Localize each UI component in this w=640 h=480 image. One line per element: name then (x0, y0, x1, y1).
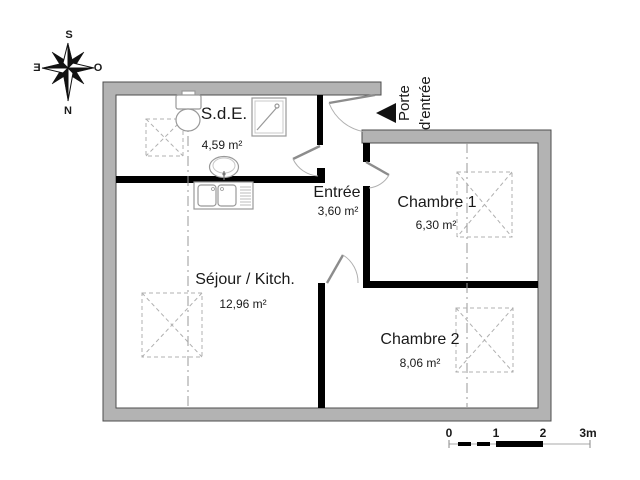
floor-plan: S.d.E. 4,59 m² Entrée 3,60 m² Chambre 1 … (0, 0, 640, 480)
room-area-chambre1: 6,30 m² (416, 218, 457, 232)
wall-sde-door-jamb (317, 168, 325, 176)
scale-tick-0: 0 (446, 426, 453, 440)
entry-door-swing (329, 95, 375, 132)
toilet-icon (176, 91, 201, 131)
scale-bar (449, 440, 590, 448)
room-area-entree: 3,60 m² (318, 204, 359, 218)
room-area-sejour: 12,96 m² (219, 297, 266, 311)
compass-label-east: E (33, 62, 40, 74)
wall-sde-east (317, 95, 323, 145)
outer-wall (103, 82, 551, 421)
kitchen-sink-icon (194, 182, 253, 209)
shower-icon (252, 98, 286, 136)
scale-tick-1: 1 (493, 426, 500, 440)
compass-label-west: O (94, 62, 103, 74)
room-label-chambre1: Chambre 1 (397, 194, 476, 212)
roof-window-icon (142, 293, 202, 357)
entry-arrow-icon (376, 103, 396, 123)
chambre2-door-swing (327, 255, 358, 283)
entry-door-label-line1: Porte (394, 60, 415, 146)
room-area-sde: 4,59 m² (202, 138, 243, 152)
scale-tick-2: 2 (540, 426, 547, 440)
wall-entree-chambre1-lower (363, 186, 370, 288)
wall-chambre1-chambre2 (363, 281, 538, 288)
compass-rose-icon (42, 43, 94, 101)
compass-label-north: N (64, 105, 72, 117)
entry-door-label: Porte d'entrée (394, 60, 440, 146)
wall-sejour-chambre2 (318, 283, 325, 408)
room-label-sde: S.d.E. (201, 104, 247, 124)
room-label-sejour: Séjour / Kitch. (195, 271, 295, 289)
chambre1-door-swing (366, 162, 389, 188)
room-label-chambre2: Chambre 2 (380, 331, 459, 349)
wall-entree-chambre1-upper (363, 143, 370, 162)
room-label-entree: Entrée (313, 184, 360, 202)
scale-tick-3: 3m (579, 426, 596, 440)
compass-label-south: S (65, 29, 72, 41)
entry-door-label-line2: d'entrée (415, 60, 436, 146)
room-area-chambre2: 8,06 m² (400, 356, 441, 370)
sde-door-swing (293, 146, 320, 176)
roof-window-icon (456, 308, 513, 372)
